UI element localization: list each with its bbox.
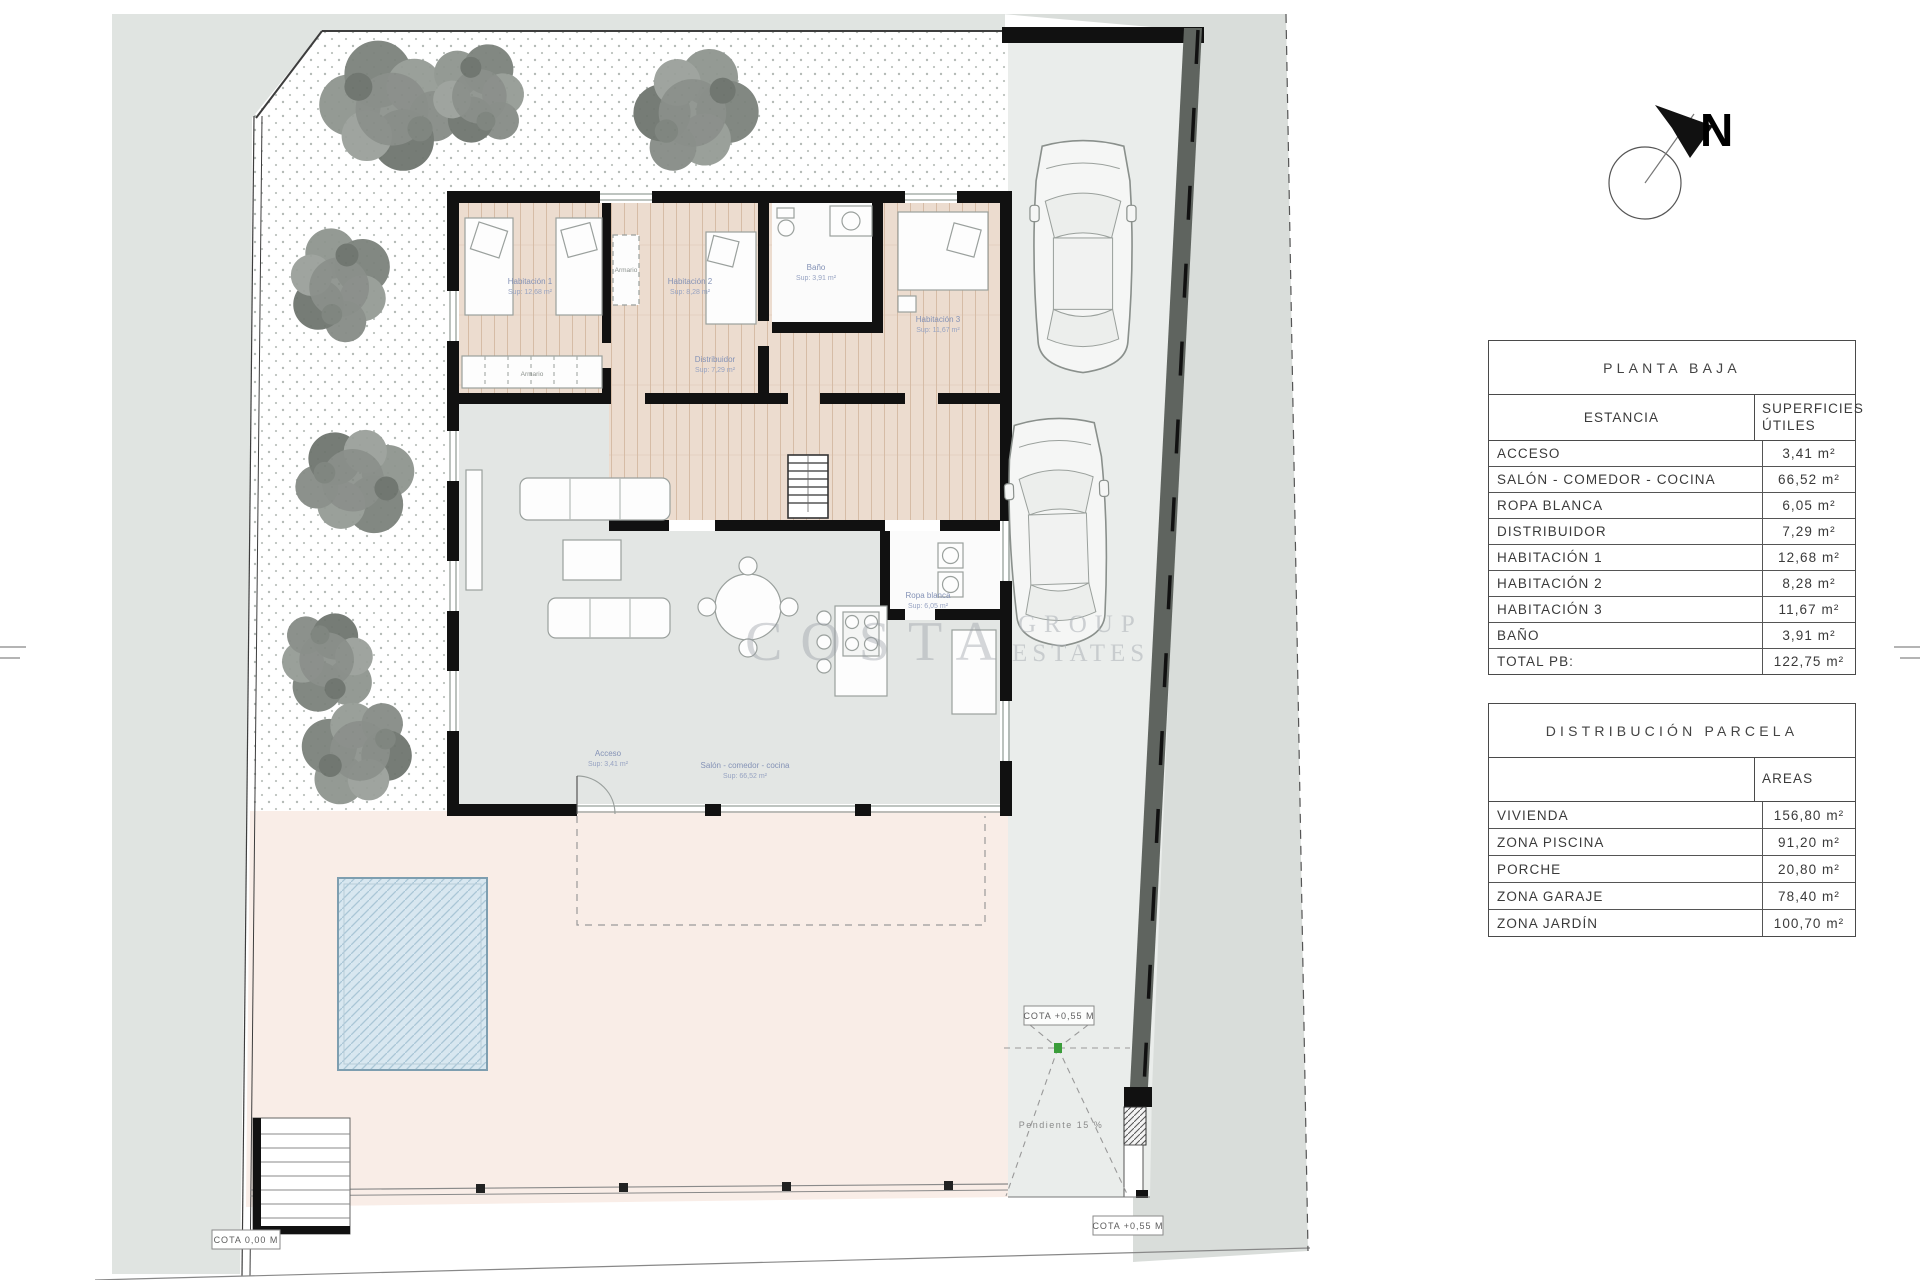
table-row: VIVIENDA 156,80 m² [1489, 802, 1855, 829]
room-sup: Sup: 6,05 m² [908, 603, 949, 610]
room-sup: Sup: 3,91 m² [796, 275, 837, 282]
north-arrow-icon: N [1609, 104, 1733, 219]
watermark-big: COSTA [745, 611, 1014, 673]
row-label: ROPA BLANCA [1489, 493, 1763, 518]
room-sup: Sup: 8,28 m² [670, 289, 711, 296]
table-row: ZONA PISCINA 91,20 m² [1489, 829, 1855, 856]
room-label: Distribuidor [695, 355, 736, 364]
street-line [95, 1248, 1310, 1280]
room-label: Baño [807, 263, 826, 272]
cota-label: COTA +0,55 M [1092, 1221, 1163, 1231]
row-value: 6,05 m² [1763, 493, 1855, 518]
row-value: 91,20 m² [1763, 829, 1855, 855]
row-value: 122,75 m² [1763, 649, 1855, 674]
table-row: ZONA JARDÍN 100,70 m² [1489, 910, 1855, 936]
table-row: ROPA BLANCA 6,05 m² [1489, 493, 1855, 519]
row-value: 11,67 m² [1763, 597, 1855, 622]
table-row: BAÑO 3,91 m² [1489, 623, 1855, 649]
gate-marker [1054, 1043, 1062, 1053]
column-header-estancia: ESTANCIA [1489, 395, 1755, 440]
row-label: SALÓN - COMEDOR - COCINA [1489, 467, 1763, 492]
room-label: Habitación 1 [508, 277, 553, 286]
row-label: BAÑO [1489, 623, 1763, 648]
column-header-superficies: SUPERFICIES ÚTILES [1755, 395, 1864, 440]
pool [338, 878, 487, 1070]
row-value: 20,80 m² [1763, 856, 1855, 882]
row-label: ZONA PISCINA [1489, 829, 1763, 855]
row-label: HABITACIÓN 3 [1489, 597, 1763, 622]
table-row: DISTRIBUIDOR 7,29 m² [1489, 519, 1855, 545]
room-sup: Sup: 11,67 m² [916, 327, 960, 334]
room-sup: Sup: 3,41 m² [588, 761, 629, 768]
row-label: ACCESO [1489, 441, 1763, 466]
row-label: HABITACIÓN 2 [1489, 571, 1763, 596]
room-label: Habitación 2 [668, 277, 713, 286]
row-label: ZONA JARDÍN [1489, 910, 1763, 936]
row-value: 156,80 m² [1763, 802, 1855, 828]
table-row: ACCESO 3,41 m² [1489, 441, 1855, 467]
row-label: TOTAL PB: [1489, 649, 1763, 674]
row-value: 78,40 m² [1763, 883, 1855, 909]
watermark-line2: ESTATES [1012, 640, 1149, 667]
floor-plan-sheet: COSTA GROUP ESTATES Habitación 1 Sup: 12… [0, 0, 1920, 1280]
room-label: Acceso [595, 749, 622, 758]
distribucion-parcela-table: DISTRIBUCIÓN PARCELA AREAS VIVIENDA 156,… [1488, 703, 1856, 937]
north-label: N [1700, 104, 1733, 156]
room-label: Habitación 3 [916, 315, 961, 324]
exterior-stairs [253, 1118, 350, 1234]
room-sup: Sup: 66,52 m² [723, 773, 768, 780]
room-sup: Sup: 12,68 m² [508, 289, 553, 296]
table-row: HABITACIÓN 2 8,28 m² [1489, 571, 1855, 597]
watermark-line1: GROUP [1018, 611, 1143, 638]
row-label: HABITACIÓN 1 [1489, 545, 1763, 570]
row-value: 3,41 m² [1763, 441, 1855, 466]
room-label: Salón - comedor - cocina [701, 761, 790, 770]
table-row: ZONA GARAJE 78,40 m² [1489, 883, 1855, 910]
room-sup: Sup: 7,29 m² [695, 367, 736, 374]
row-value: 8,28 m² [1763, 571, 1855, 596]
car-icon [1030, 141, 1136, 373]
armario-label: Armario [521, 371, 544, 378]
table-title: PLANTA BAJA [1489, 341, 1855, 395]
table-row: HABITACIÓN 3 11,67 m² [1489, 597, 1855, 623]
row-value: 66,52 m² [1763, 467, 1855, 492]
row-label: VIVIENDA [1489, 802, 1763, 828]
column-header-blank [1489, 758, 1755, 801]
table-row: PORCHE 20,80 m² [1489, 856, 1855, 883]
column-header-areas: AREAS [1755, 758, 1855, 801]
top-boundary-wall [1002, 27, 1204, 43]
armario-label: Armario [615, 267, 638, 274]
cota-label: COTA +0,55 M [1023, 1011, 1094, 1021]
row-label: PORCHE [1489, 856, 1763, 882]
table-row: SALÓN - COMEDOR - COCINA 66,52 m² [1489, 467, 1855, 493]
table-row: TOTAL PB: 122,75 m² [1489, 649, 1855, 674]
table-row: HABITACIÓN 1 12,68 m² [1489, 545, 1855, 571]
row-value: 3,91 m² [1763, 623, 1855, 648]
row-label: DISTRIBUIDOR [1489, 519, 1763, 544]
cota-label: COTA 0,00 M [214, 1235, 279, 1245]
row-label: ZONA GARAJE [1489, 883, 1763, 909]
row-value: 100,70 m² [1763, 910, 1855, 936]
row-value: 12,68 m² [1763, 545, 1855, 570]
pendiente-label: Pendiente 15 % [1019, 1120, 1104, 1130]
table-title: DISTRIBUCIÓN PARCELA [1489, 704, 1855, 758]
planta-baja-table: PLANTA BAJA ESTANCIA SUPERFICIES ÚTILES … [1488, 340, 1856, 675]
row-value: 7,29 m² [1763, 519, 1855, 544]
watermark: COSTA GROUP ESTATES [745, 611, 1149, 673]
room-label: Ropa blanca [906, 591, 951, 600]
